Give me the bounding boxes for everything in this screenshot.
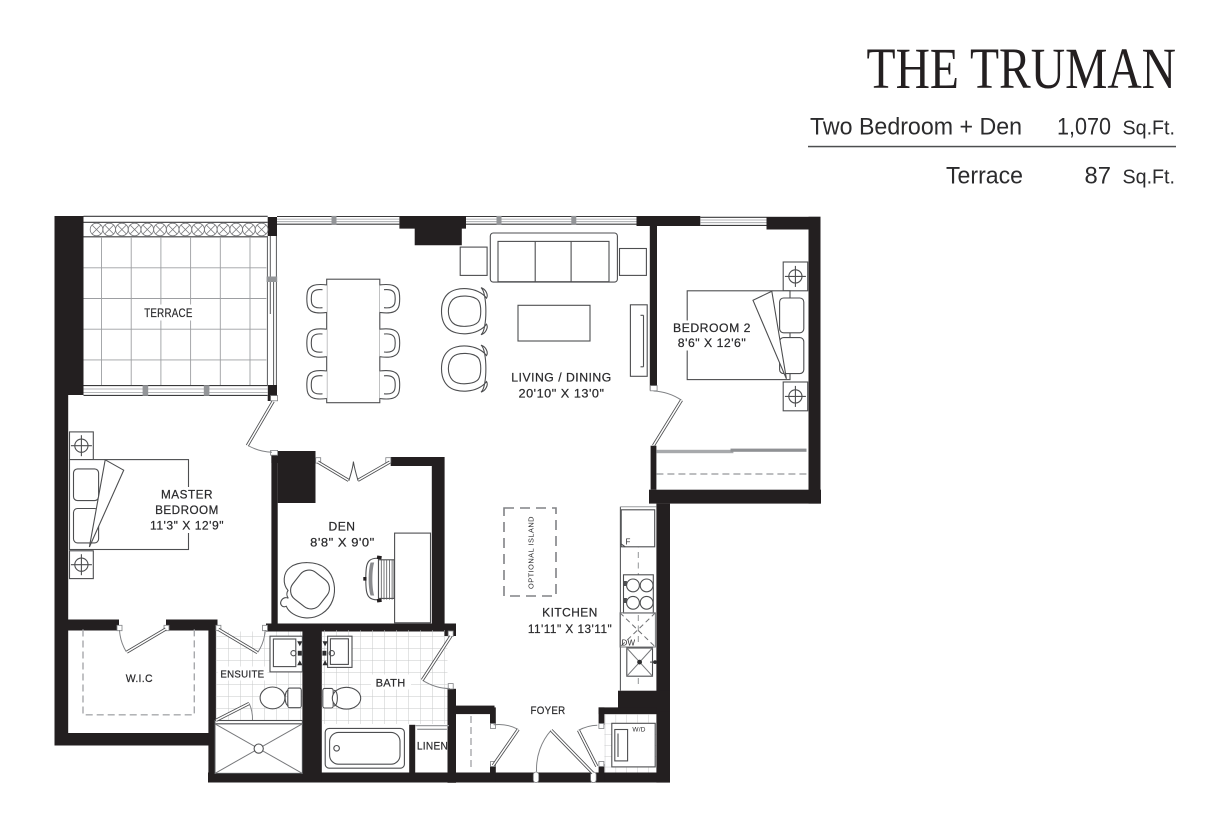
svg-text:Sq.Ft.: Sq.Ft. xyxy=(1123,118,1176,140)
svg-text:ENSUITE: ENSUITE xyxy=(220,670,264,681)
svg-text:FOYER: FOYER xyxy=(531,705,566,717)
svg-text:LIVING / DINING: LIVING / DINING xyxy=(511,370,612,384)
svg-text:DW: DW xyxy=(622,639,636,648)
svg-text:THE TRUMAN: THE TRUMAN xyxy=(867,38,1176,101)
svg-text:W.I.C: W.I.C xyxy=(126,673,153,685)
svg-text:11'11" X 13'11": 11'11" X 13'11" xyxy=(528,622,612,636)
svg-text:F: F xyxy=(626,538,631,547)
svg-text:OPTIONAL ISLAND: OPTIONAL ISLAND xyxy=(527,516,536,589)
svg-text:8'8" X 9'0": 8'8" X 9'0" xyxy=(310,536,375,550)
svg-text:DEN: DEN xyxy=(329,520,356,534)
svg-text:1,070: 1,070 xyxy=(1057,114,1111,141)
svg-text:Terrace: Terrace xyxy=(946,163,1023,190)
svg-text:BATH: BATH xyxy=(376,677,406,689)
svg-text:BEDROOM: BEDROOM xyxy=(155,503,219,517)
svg-text:Two Bedroom + Den: Two Bedroom + Den xyxy=(810,114,1022,141)
svg-text:BEDROOM 2: BEDROOM 2 xyxy=(673,321,751,335)
svg-text:KITCHEN: KITCHEN xyxy=(542,606,598,620)
svg-text:MASTER: MASTER xyxy=(161,487,213,501)
svg-text:Sq.Ft.: Sq.Ft. xyxy=(1123,167,1176,189)
svg-text:LINEN: LINEN xyxy=(417,741,448,753)
svg-text:20'10" X 13'0": 20'10" X 13'0" xyxy=(519,386,605,400)
svg-text:TERRACE: TERRACE xyxy=(144,306,192,320)
svg-text:W/D: W/D xyxy=(632,727,645,734)
svg-text:8'6" X 12'6": 8'6" X 12'6" xyxy=(678,336,746,350)
svg-text:11'3" X 12'9": 11'3" X 12'9" xyxy=(150,519,224,533)
svg-text:87: 87 xyxy=(1085,163,1112,190)
